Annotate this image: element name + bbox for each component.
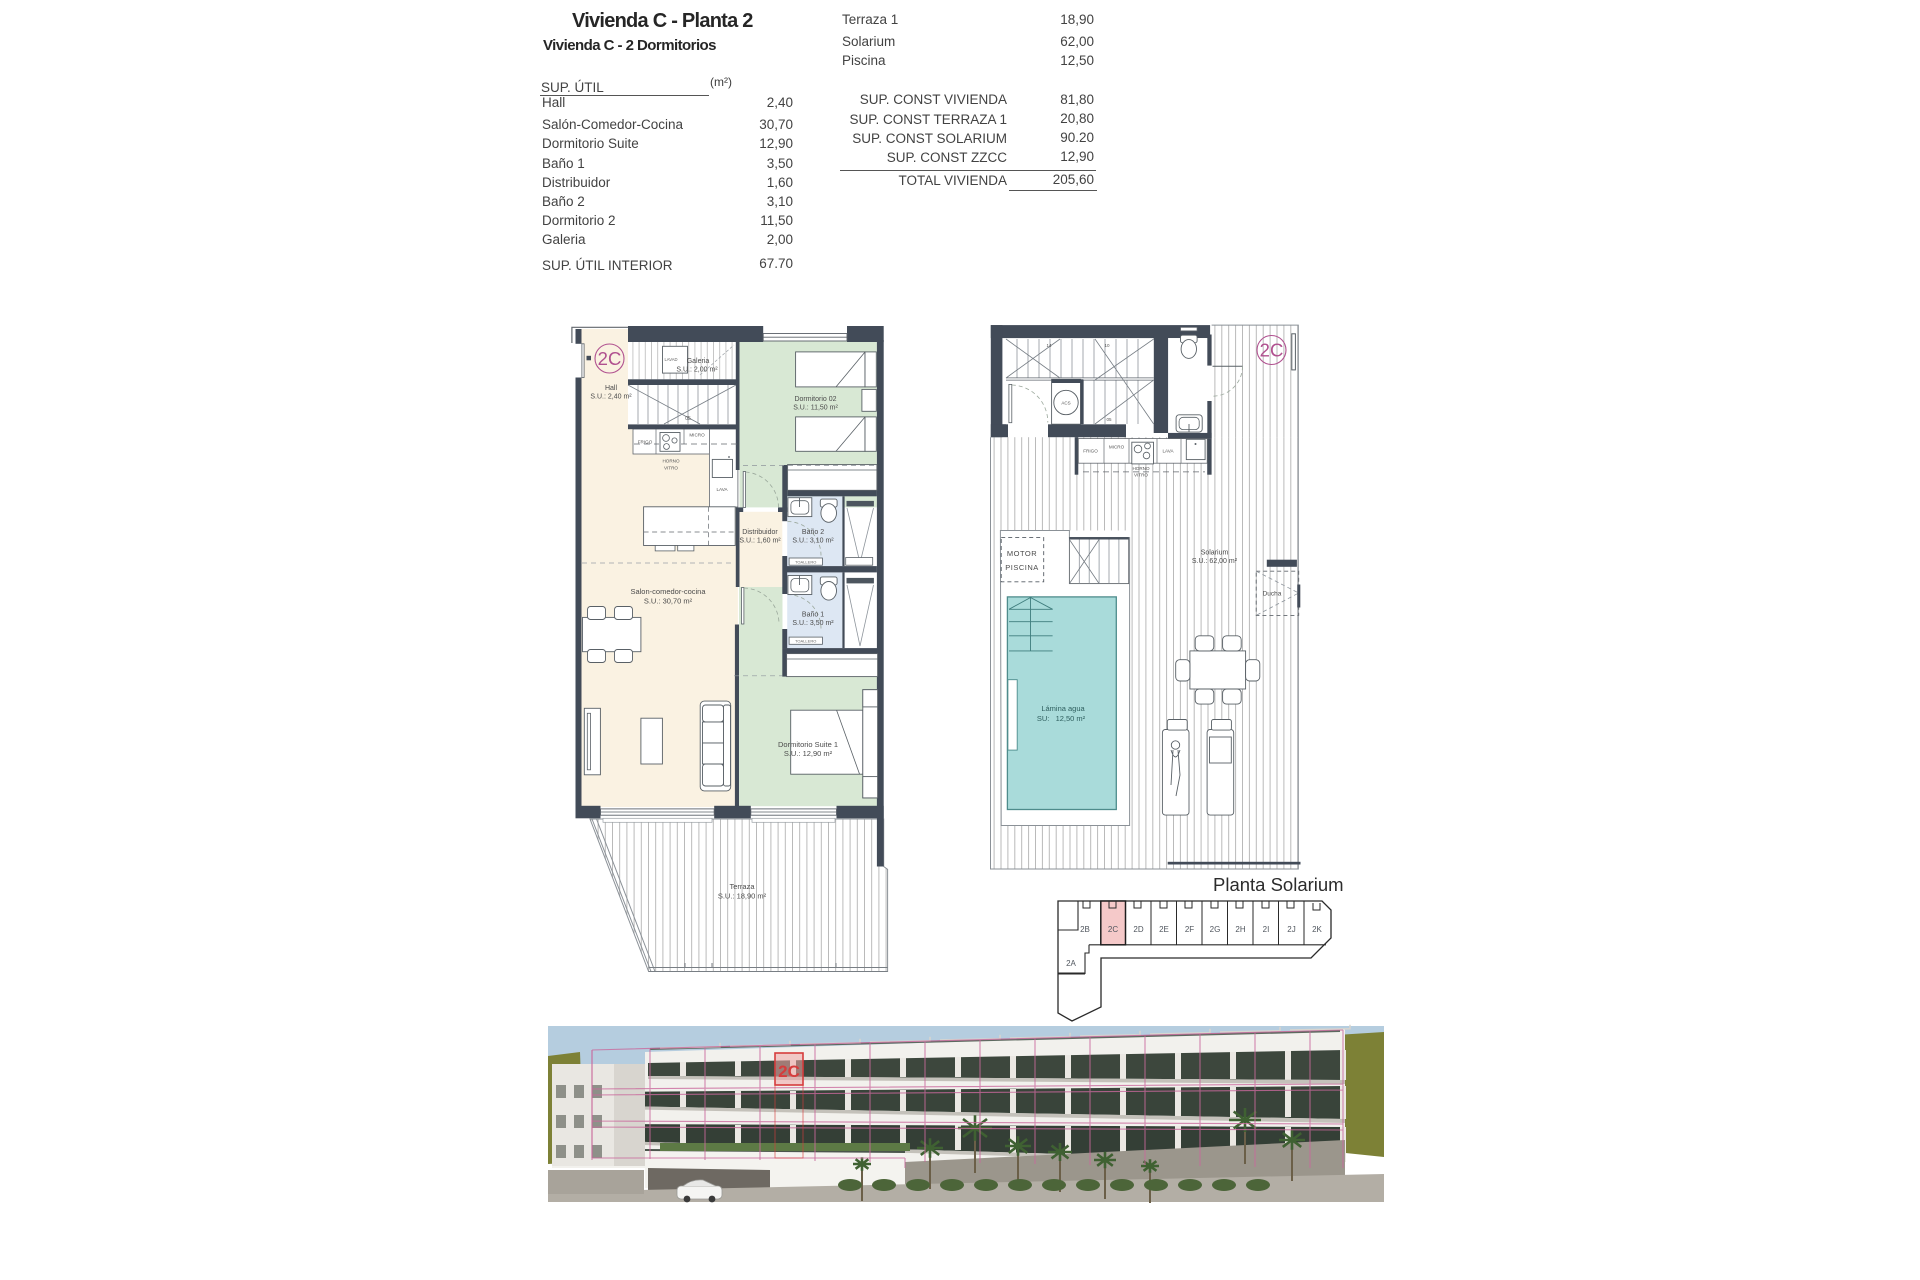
svg-text:2C: 2C [778,1062,800,1081]
svg-text:S.U.: 62,00 m²: S.U.: 62,00 m² [1192,558,1238,565]
svg-text:2D: 2D [1133,925,1143,934]
svg-text:S.U.: 3,50 m²: S.U.: 3,50 m² [792,620,834,627]
svg-text:MICRO: MICRO [689,433,705,438]
svg-text:Galeria: Galeria [687,358,710,365]
svg-text:TOALLERO: TOALLERO [795,638,816,643]
svg-text:S.U.: 30,70 m²: S.U.: 30,70 m² [644,597,693,606]
svg-text:HORNO: HORNO [1132,466,1150,471]
svg-text:SU: 12,50 m²: SU: 12,50 m² [1037,714,1086,723]
svg-text:LAVA: LAVA [1162,449,1174,454]
svg-text:Distribuidor: Distribuidor [742,529,778,536]
svg-text:LAVA: LAVA [716,487,728,492]
svg-text:2A: 2A [1066,959,1076,968]
svg-text:TOALLERO: TOALLERO [795,559,816,564]
svg-text:S.U.: 2,40 m²: S.U.: 2,40 m² [590,394,632,401]
svg-text:2J: 2J [1287,925,1295,934]
svg-text:S.U.: 12,90 m²: S.U.: 12,90 m² [784,749,833,758]
svg-text:2B: 2B [1080,925,1090,934]
svg-text:05: 05 [685,416,691,422]
svg-text:2I: 2I [1263,925,1270,934]
svg-text:2H: 2H [1235,925,1245,934]
svg-text:FRIGO: FRIGO [1083,449,1098,454]
svg-text:2F: 2F [1185,925,1194,934]
svg-text:2G: 2G [1210,925,1221,934]
svg-text:LAVAD: LAVAD [664,357,677,362]
svg-text:Baño 1: Baño 1 [802,612,824,619]
svg-text:2C: 2C [1260,340,1284,361]
svg-text:Dormitorio Suite 1: Dormitorio Suite 1 [778,740,838,749]
svg-text:Baño 2: Baño 2 [802,529,824,536]
svg-text:S.U.: 3,10 m²: S.U.: 3,10 m² [792,538,834,545]
svg-text:PISCINA: PISCINA [1005,563,1039,572]
svg-text:Solarium: Solarium [1201,550,1229,557]
svg-text:S.U.: 2,00 m²: S.U.: 2,00 m² [676,367,718,374]
svg-text:Hall: Hall [605,385,618,392]
svg-text:S.U.: 11,50 m²: S.U.: 11,50 m² [793,405,838,412]
svg-text:ACS: ACS [1061,401,1070,406]
svg-text:Ducha: Ducha [1263,591,1282,598]
svg-text:10: 10 [1104,343,1110,348]
svg-text:VITRO: VITRO [664,466,678,471]
svg-text:2K: 2K [1312,925,1322,934]
svg-text:14: 14 [1046,343,1052,348]
svg-text:HORNO: HORNO [662,459,680,464]
svg-text:Terraza: Terraza [729,882,755,891]
svg-text:2E: 2E [1159,925,1169,934]
svg-text:05: 05 [1106,417,1112,422]
svg-text:2C: 2C [1108,925,1118,934]
svg-text:VITRO: VITRO [1134,473,1148,478]
svg-text:MICRO: MICRO [1109,445,1125,450]
svg-text:Lámina agua: Lámina agua [1041,704,1085,713]
svg-text:MOTOR: MOTOR [1007,549,1037,558]
svg-text:S.U.: 1,60 m²: S.U.: 1,60 m² [739,538,781,545]
svg-text:2C: 2C [598,348,622,369]
svg-text:Dormitorio 02: Dormitorio 02 [794,396,836,403]
svg-text:Salon-comedor-cocina: Salon-comedor-cocina [630,587,706,596]
svg-text:S.U.: 18,90 m²: S.U.: 18,90 m² [718,892,767,901]
